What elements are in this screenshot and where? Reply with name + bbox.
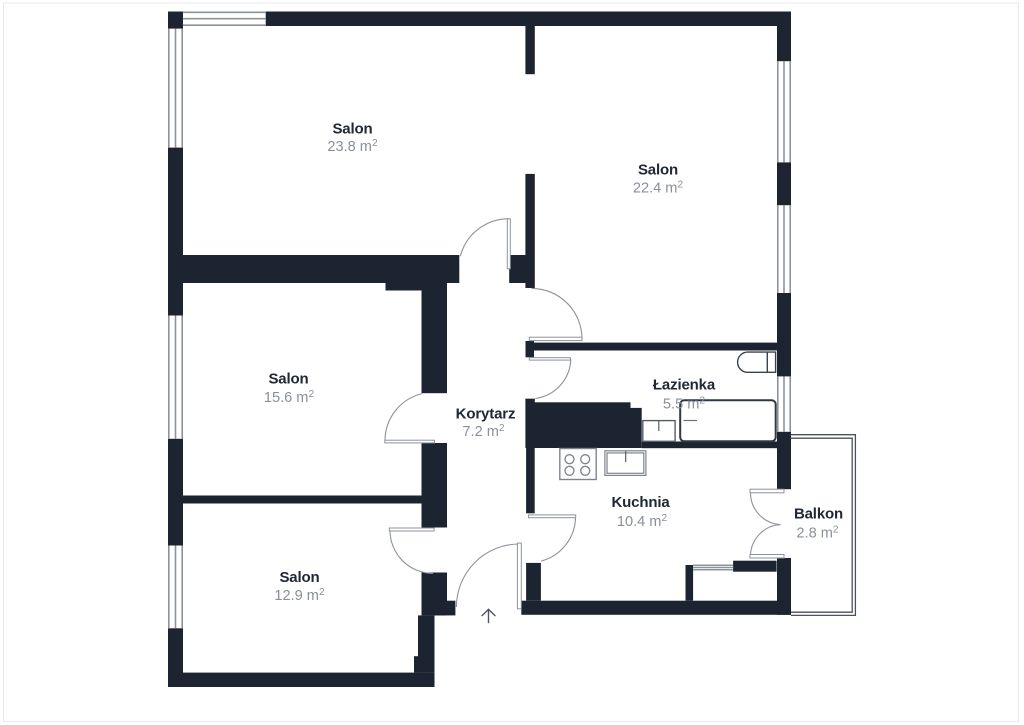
svg-text:Łazienka: Łazienka [653, 377, 716, 394]
svg-text:Salon: Salon [268, 371, 308, 388]
svg-text:15.6 m2: 15.6 m2 [264, 389, 315, 406]
svg-text:Salon: Salon [638, 162, 678, 179]
svg-text:10.4 m2: 10.4 m2 [617, 513, 668, 530]
svg-text:Korytarz: Korytarz [456, 406, 516, 423]
svg-text:Salon: Salon [332, 121, 372, 138]
svg-text:Balkon: Balkon [794, 506, 843, 523]
svg-text:2.8 m2: 2.8 m2 [796, 525, 839, 542]
svg-text:Kuchnia: Kuchnia [611, 494, 670, 511]
svg-text:5.5 m2: 5.5 m2 [663, 396, 706, 413]
svg-text:22.4 m2: 22.4 m2 [633, 180, 684, 197]
svg-text:7.2 m2: 7.2 m2 [462, 423, 505, 440]
svg-text:Salon: Salon [279, 569, 319, 586]
svg-text:12.9 m2: 12.9 m2 [274, 587, 325, 604]
svg-text:23.8 m2: 23.8 m2 [327, 138, 378, 155]
